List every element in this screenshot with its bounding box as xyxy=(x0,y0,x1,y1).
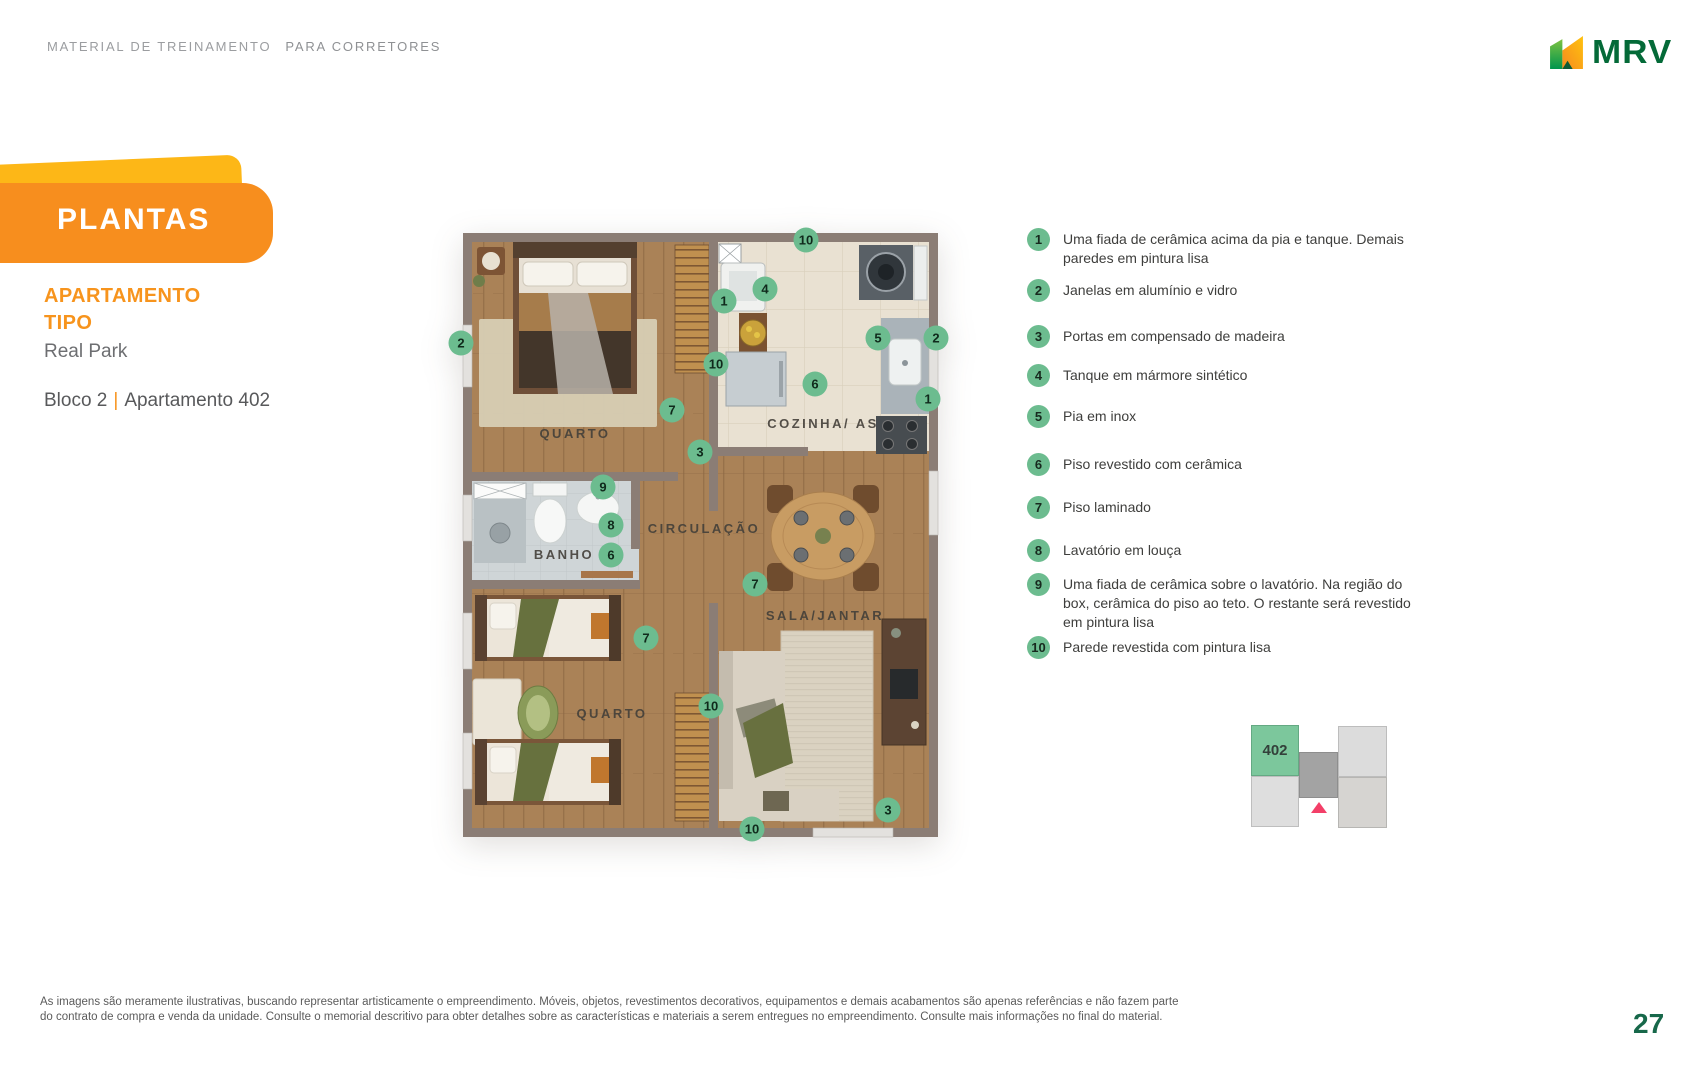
legend-item: 2Janelas em alumínio e vidro xyxy=(1027,281,1421,302)
legend-item: 4Tanque em mármore sintético xyxy=(1027,366,1421,387)
legend-number-badge: 9 xyxy=(1027,573,1050,596)
room-label: CIRCULAÇÃO xyxy=(648,521,760,536)
legend-number-badge: 6 xyxy=(1027,453,1050,476)
svg-text:7: 7 xyxy=(751,577,758,592)
legend-text: Piso laminado xyxy=(1063,498,1421,517)
floor-plan: QUARTOCOZINHA/ ASCIRCULAÇÃOBANHOSALA/JAN… xyxy=(448,218,953,852)
plan-marker: 4 xyxy=(753,277,778,302)
mini-map-unit-402: 402 xyxy=(1251,725,1299,776)
legend-text: Lavatório em louça xyxy=(1063,541,1421,560)
svg-text:10: 10 xyxy=(745,822,759,837)
legend-item: 8Lavatório em louça xyxy=(1027,541,1421,562)
svg-text:7: 7 xyxy=(642,631,649,646)
plan-marker: 6 xyxy=(803,372,828,397)
legend-item: 9Uma fiada de cerâmica sobre o lavatório… xyxy=(1027,575,1421,632)
project-name: Real Park xyxy=(44,341,127,363)
svg-text:5: 5 xyxy=(874,331,881,346)
plan-marker: 7 xyxy=(634,626,659,651)
block-label: Bloco 2 xyxy=(44,390,107,411)
room-label: SALA/JANTAR xyxy=(766,608,884,623)
svg-text:2: 2 xyxy=(932,331,939,346)
mrv-logo-icon xyxy=(1548,34,1585,71)
room-label: BANHO xyxy=(534,547,594,562)
legend-item: 10Parede revestida com pintura lisa xyxy=(1027,638,1421,659)
finish-legend: 1Uma fiada de cerâmica acima da pia e ta… xyxy=(1027,228,1457,673)
plan-marker: 3 xyxy=(876,798,901,823)
disclaimer-line1: As imagens são meramente ilustrativas, b… xyxy=(40,995,1178,1010)
legend-number-badge: 3 xyxy=(1027,325,1050,348)
plan-marker: 10 xyxy=(740,817,765,842)
plan-marker: 7 xyxy=(743,572,768,597)
legend-number-badge: 1 xyxy=(1027,228,1050,251)
slide: MATERIAL DE TREINAMENTOPARA CORRETORES M… xyxy=(0,0,1706,1066)
plan-marker: 8 xyxy=(599,513,624,538)
apartment-type-heading: APARTAMENTO TIPO xyxy=(44,283,201,337)
plan-marker: 10 xyxy=(704,352,729,377)
legend-number-badge: 2 xyxy=(1027,279,1050,302)
svg-text:7: 7 xyxy=(668,403,675,418)
plan-marker: 6 xyxy=(599,543,624,568)
block-unit-line: Bloco 2|Apartamento 402 xyxy=(44,390,270,412)
mini-map-core xyxy=(1299,752,1338,798)
svg-text:10: 10 xyxy=(704,699,718,714)
page-title: PLANTAS xyxy=(57,203,210,237)
plan-marker: 3 xyxy=(688,440,713,465)
separator: | xyxy=(113,390,118,411)
legend-number-badge: 7 xyxy=(1027,496,1050,519)
eyebrow-right: PARA CORRETORES xyxy=(285,39,441,54)
mrv-logo: MRV xyxy=(1548,33,1668,71)
room-label: COZINHA/ AS xyxy=(767,416,879,431)
legend-item: 7Piso laminado xyxy=(1027,498,1421,519)
eyebrow-left: MATERIAL DE TREINAMENTO xyxy=(47,39,271,54)
plan-marker: 2 xyxy=(449,331,474,356)
svg-text:10: 10 xyxy=(709,357,723,372)
svg-text:10: 10 xyxy=(799,233,813,248)
apartment-type-line2: TIPO xyxy=(44,310,201,337)
plan-marker: 1 xyxy=(916,387,941,412)
page-number: 27 xyxy=(1633,1008,1664,1040)
legend-number-badge: 4 xyxy=(1027,364,1050,387)
legend-number-badge: 5 xyxy=(1027,405,1050,428)
mini-map-unit-left-bottom xyxy=(1251,776,1299,827)
apartment-type-line1: APARTAMENTO xyxy=(44,283,201,310)
svg-text:2: 2 xyxy=(457,336,464,351)
svg-text:6: 6 xyxy=(607,548,614,563)
header-eyebrow: MATERIAL DE TREINAMENTOPARA CORRETORES xyxy=(47,39,441,54)
legend-text: Janelas em alumínio e vidro xyxy=(1063,281,1421,300)
legend-text: Pia em inox xyxy=(1063,407,1421,426)
legend-number-badge: 8 xyxy=(1027,539,1050,562)
disclaimer: As imagens são meramente ilustrativas, b… xyxy=(40,995,1178,1025)
plan-marker: 10 xyxy=(794,228,819,253)
plan-marker: 10 xyxy=(699,694,724,719)
legend-text: Uma fiada de cerâmica acima da pia e tan… xyxy=(1063,230,1421,268)
svg-text:3: 3 xyxy=(696,445,703,460)
mini-map-unit-right-bottom xyxy=(1338,777,1387,828)
legend-item: 3Portas em compensado de madeira xyxy=(1027,327,1421,348)
unit-label: Apartamento 402 xyxy=(124,390,270,411)
legend-text: Tanque em mármore sintético xyxy=(1063,366,1421,385)
svg-text:3: 3 xyxy=(884,803,891,818)
plan-marker: 2 xyxy=(924,326,949,351)
svg-text:8: 8 xyxy=(607,518,614,533)
mini-map-unit-right-top xyxy=(1338,726,1387,777)
legend-item: 5Pia em inox xyxy=(1027,407,1421,428)
mini-map-entry-pointer-icon xyxy=(1311,802,1327,813)
legend-number-badge: 10 xyxy=(1027,636,1050,659)
svg-text:1: 1 xyxy=(924,392,931,407)
legend-item: 6Piso revestido com cerâmica xyxy=(1027,455,1421,476)
disclaimer-line2: do contrato de compra e venda da unidade… xyxy=(40,1010,1178,1025)
svg-text:4: 4 xyxy=(761,282,769,297)
svg-text:9: 9 xyxy=(599,480,606,495)
plan-marker: 5 xyxy=(866,326,891,351)
room-label: QUARTO xyxy=(539,426,610,441)
legend-item: 1Uma fiada de cerâmica acima da pia e ta… xyxy=(1027,230,1421,268)
legend-text: Uma fiada de cerâmica sobre o lavatório.… xyxy=(1063,575,1421,632)
legend-text: Piso revestido com cerâmica xyxy=(1063,455,1421,474)
legend-text: Parede revestida com pintura lisa xyxy=(1063,638,1421,657)
plan-marker: 1 xyxy=(712,289,737,314)
plan-marker: 9 xyxy=(591,475,616,500)
svg-text:6: 6 xyxy=(811,377,818,392)
plan-marker: 7 xyxy=(660,398,685,423)
room-label: QUARTO xyxy=(576,706,647,721)
legend-text: Portas em compensado de madeira xyxy=(1063,327,1421,346)
svg-text:1: 1 xyxy=(720,294,727,309)
mrv-logo-text: MRV xyxy=(1592,33,1672,71)
